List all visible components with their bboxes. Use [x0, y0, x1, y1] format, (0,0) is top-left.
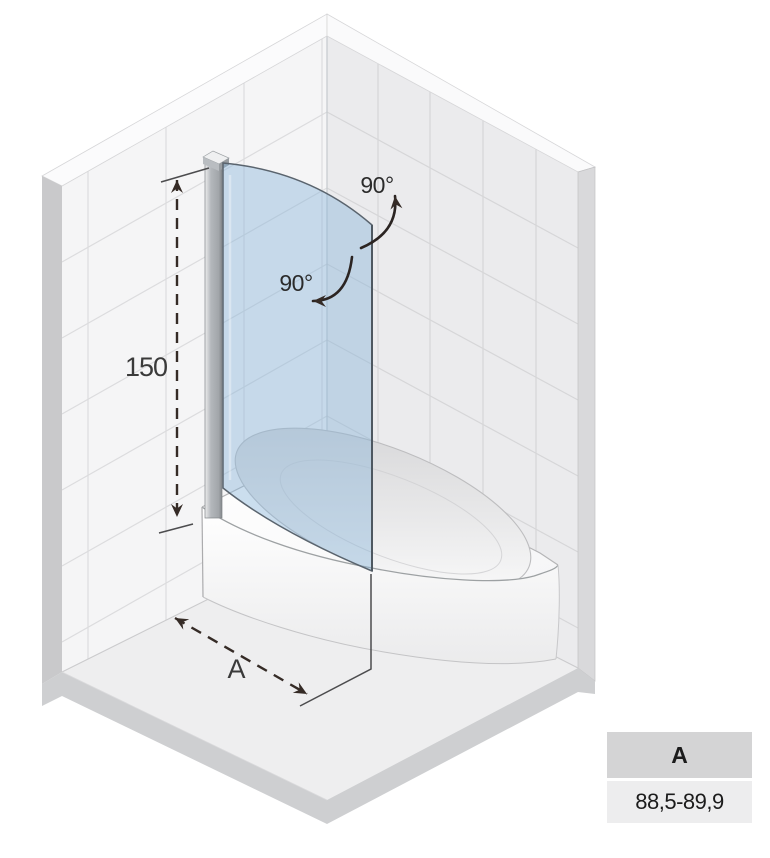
- isometric-scene: 150 A 90° 90°: [0, 0, 770, 858]
- bath-screen-diagram: 150 A 90° 90° A 88,5-89,9: [0, 0, 770, 858]
- height-dim-label: 150: [125, 352, 167, 382]
- spec-table-header: A: [607, 732, 752, 778]
- right-wall-outer-face: [578, 167, 595, 681]
- left-wall-outer-face: [42, 176, 62, 684]
- swing-angle-bottom-label: 90°: [279, 270, 312, 296]
- width-dim-label: A: [227, 654, 245, 684]
- spec-table: A 88,5-89,9: [607, 732, 752, 823]
- spec-table-value: 88,5-89,9: [607, 781, 752, 823]
- swing-angle-top-label: 90°: [360, 172, 393, 198]
